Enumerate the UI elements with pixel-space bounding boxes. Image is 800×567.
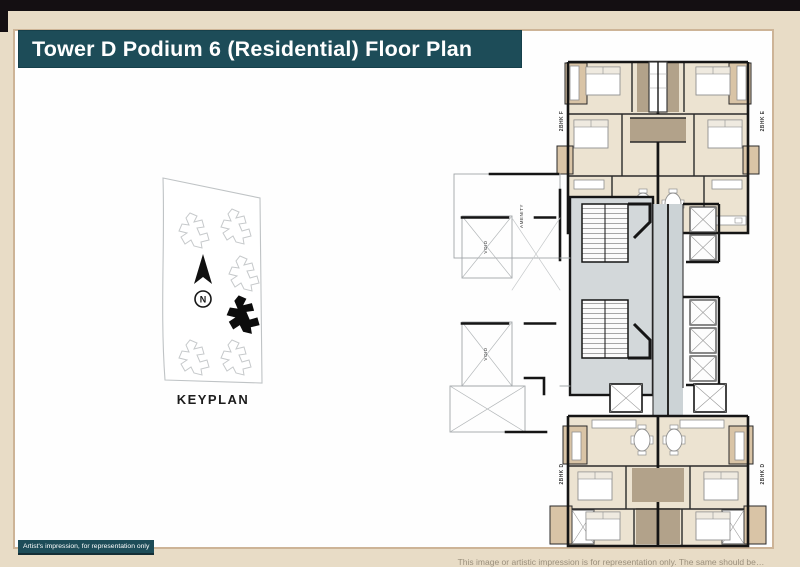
- unit-bottom-left: [550, 416, 658, 546]
- amenity-void-wing: AMENITY VOID VOID: [450, 174, 570, 432]
- keyplan-caption: KEYPLAN: [148, 392, 278, 407]
- lift-shaft: [690, 235, 716, 260]
- top-black-bar: [0, 0, 800, 11]
- lift-shaft: [690, 356, 716, 381]
- void-label-upper: VOID: [483, 240, 488, 253]
- lift-shaft: [690, 207, 716, 232]
- page-title: Tower D Podium 6 (Residential) Floor Pla…: [32, 37, 472, 61]
- void-label-lower: VOID: [483, 347, 488, 360]
- top-duct-shaft: [649, 62, 667, 112]
- unit-label-top-right: 2BHK E: [760, 110, 766, 131]
- lift-shaft: [690, 300, 716, 325]
- north-letter: N: [200, 295, 207, 305]
- unit-label-bottom-left: 2BHK D: [559, 463, 565, 484]
- bottom-disclaimer: This image or artistic impression is for…: [436, 557, 786, 567]
- top-left-black-corner: [0, 0, 8, 32]
- central-core: [570, 197, 726, 426]
- floor-plan-figure: AMENITY VOID VOID 2BHK F 2BHK E 2BHK D 2…: [446, 54, 776, 548]
- unit-label-bottom-right: 2BHK D: [760, 463, 766, 484]
- amenity-label: AMENITY: [519, 204, 524, 228]
- lift-shaft: [690, 328, 716, 353]
- unit-bottom-right: [658, 416, 766, 546]
- artist-impression-badge: Artist's impression, for representation …: [18, 540, 154, 555]
- keyplan-figure: N: [155, 172, 270, 412]
- unit-label-top-left: 2BHK F: [559, 111, 565, 131]
